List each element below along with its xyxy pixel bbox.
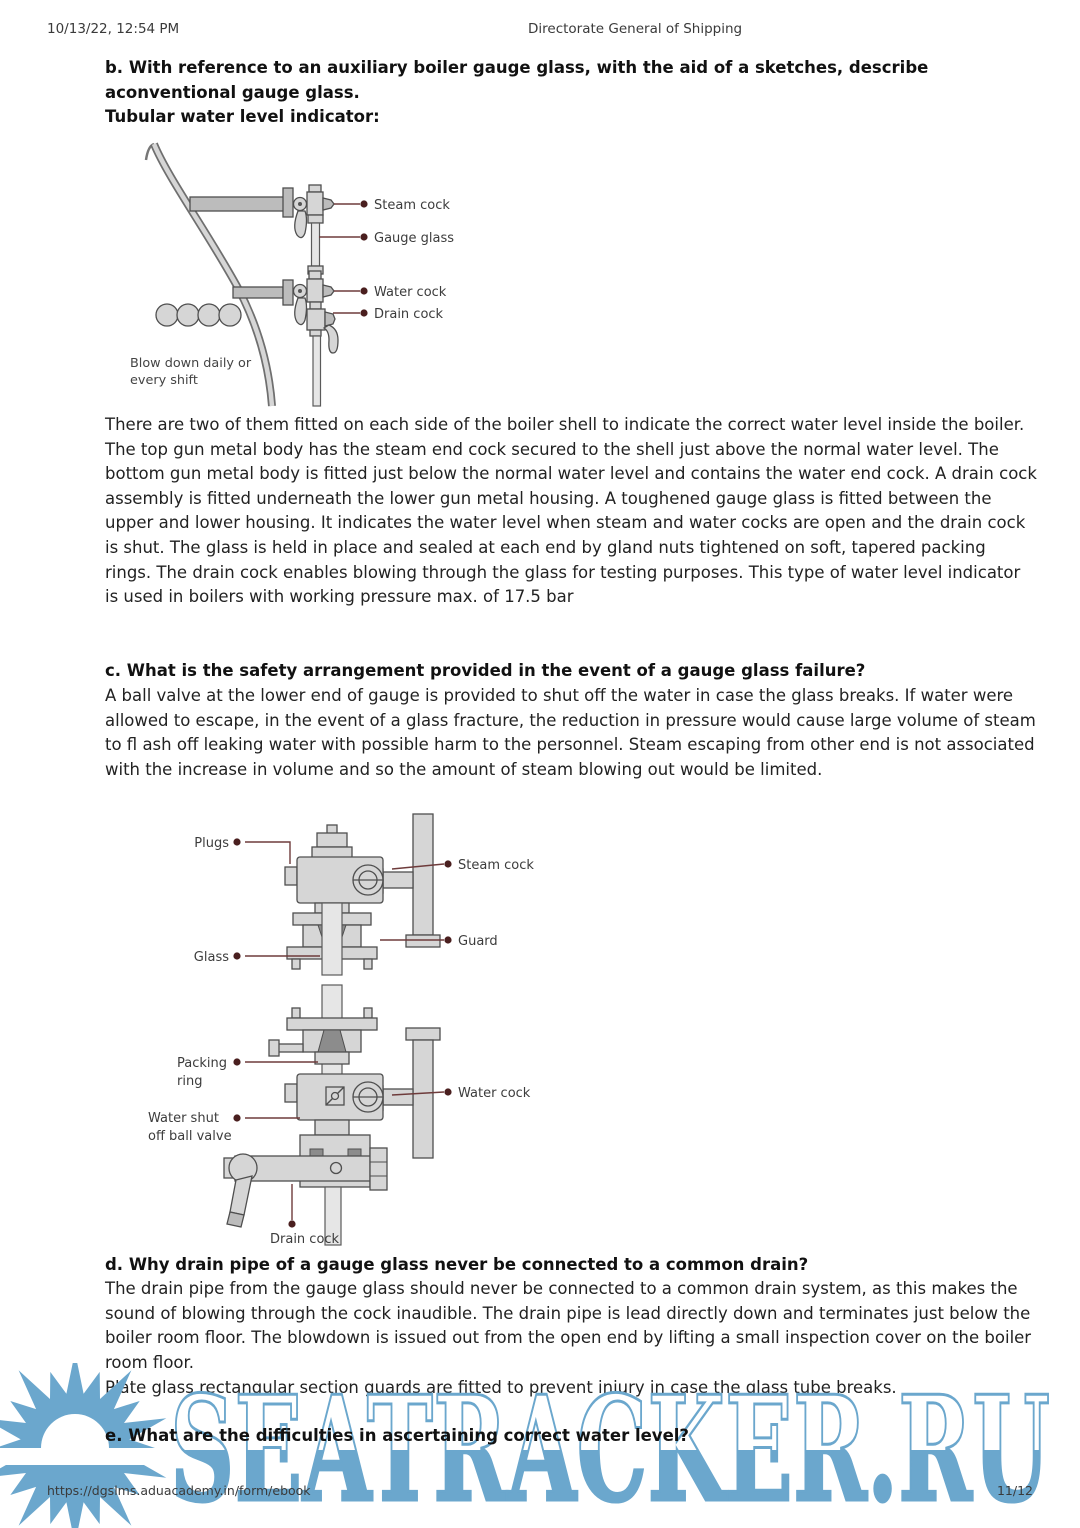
top-plug [317, 833, 347, 847]
figure1-caption-line2: every shift [130, 373, 198, 388]
question-c-heading: c. What is the safety arrangement provid… [105, 659, 1037, 684]
figure2-label-packing-1: Packing [177, 1056, 227, 1071]
figure1-label-steam-cock: Steam cock [374, 198, 450, 213]
gland-bolt [269, 1040, 279, 1056]
footer-url: https://dgslms.aduacademy.in/form/ebook [47, 1483, 311, 1498]
water-cock-handle [295, 298, 307, 325]
top-shell-bracket [190, 197, 286, 211]
figure2-label-plugs: Plugs [194, 836, 229, 851]
figure2-label-guard: Guard [458, 934, 498, 949]
lower-shell-bracket [233, 287, 283, 298]
answer-b-paragraph: There are two of them fitted on each sid… [105, 413, 1037, 610]
drain-cock-body [307, 309, 325, 330]
shell-rivet [198, 304, 220, 326]
shell-rivet [219, 304, 241, 326]
steam-cock-handle [295, 211, 307, 238]
figure2-label-water-cock: Water cock [458, 1086, 531, 1101]
question-e-heading: e. What are the difficulties in ascertai… [105, 1424, 1037, 1449]
figure-gauge-glass-section: Plugs Steam cock Guard Glass Packing rin… [140, 812, 550, 1252]
figure1-label-water-cock: Water cock [374, 285, 447, 300]
drain-cock-handle [324, 325, 338, 353]
figure1-caption-line1: Blow down daily or [130, 356, 252, 371]
document-page: 10/13/22, 12:54 PM Directorate General o… [0, 0, 1080, 1528]
drain-pipe [313, 336, 321, 406]
question-d-heading: d. Why drain pipe of a gauge glass never… [105, 1253, 1037, 1278]
shell-rivet [177, 304, 199, 326]
glass-tube-upper [322, 903, 342, 975]
figure2-label-glass: Glass [194, 950, 229, 965]
shell-rivet [156, 304, 178, 326]
answer-c-paragraph: A ball valve at the lower end of gauge i… [105, 684, 1037, 782]
header-doc-title: Directorate General of Shipping [528, 21, 742, 37]
question-b-heading: b. With reference to an auxiliary boiler… [105, 56, 1037, 105]
drain-spout [227, 1212, 244, 1227]
figure2-label-packing-2: ring [177, 1074, 202, 1089]
boiler-wall-upper [413, 814, 433, 935]
figure2-label-drain-cock: Drain cock [270, 1232, 340, 1247]
boiler-wall-lower [413, 1040, 433, 1158]
water-cock-body [307, 279, 323, 302]
figure-tubular-water-level-indicator: Steam cock Gauge glass Water cock Drain … [128, 138, 468, 413]
figure2-label-water-shut-2: off ball valve [148, 1129, 232, 1144]
figure2-label-water-shut-1: Water shut [148, 1111, 219, 1126]
gauge-glass-tube [312, 223, 320, 266]
figure2-label-steam-cock: Steam cock [458, 858, 534, 873]
header-datetime: 10/13/22, 12:54 PM [47, 21, 179, 37]
footer-page-number: 11/12 [997, 1483, 1033, 1498]
tubular-indicator-subheading: Tubular water level indicator: [105, 105, 1037, 130]
figure1-label-drain-cock: Drain cock [374, 307, 444, 322]
side-plug [285, 867, 297, 885]
steam-cock-body [307, 192, 323, 215]
figure1-label-gauge-glass: Gauge glass [374, 231, 454, 246]
